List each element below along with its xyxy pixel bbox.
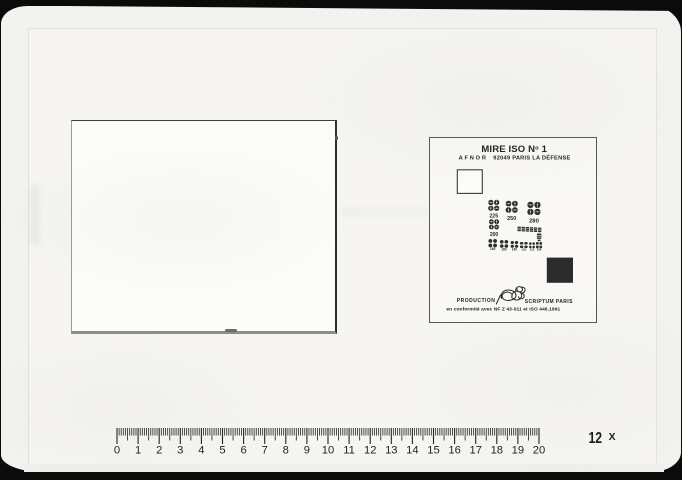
svg-text:18: 18 bbox=[491, 445, 503, 457]
svg-text:14: 14 bbox=[406, 445, 418, 457]
svg-text:16: 16 bbox=[448, 445, 460, 457]
svg-text:4: 4 bbox=[198, 445, 204, 457]
svg-text:2: 2 bbox=[156, 445, 162, 457]
svg-text:20: 20 bbox=[533, 445, 545, 457]
svg-text:1: 1 bbox=[135, 445, 141, 457]
svg-text:13: 13 bbox=[385, 445, 397, 457]
svg-text:12: 12 bbox=[364, 445, 376, 457]
svg-text:15: 15 bbox=[427, 445, 439, 457]
svg-text:0: 0 bbox=[114, 445, 120, 457]
svg-text:17: 17 bbox=[469, 445, 481, 457]
svg-text:10: 10 bbox=[322, 445, 334, 457]
svg-text:8: 8 bbox=[283, 445, 289, 457]
svg-text:12: 12 bbox=[589, 430, 603, 447]
svg-text:5: 5 bbox=[219, 445, 225, 457]
svg-text:19: 19 bbox=[512, 445, 524, 457]
svg-text:6: 6 bbox=[240, 445, 246, 457]
svg-text:11: 11 bbox=[343, 445, 355, 457]
svg-text:7: 7 bbox=[262, 445, 268, 457]
svg-text:9: 9 bbox=[304, 445, 310, 457]
svg-text:X: X bbox=[609, 432, 616, 443]
svg-text:3: 3 bbox=[177, 445, 183, 457]
